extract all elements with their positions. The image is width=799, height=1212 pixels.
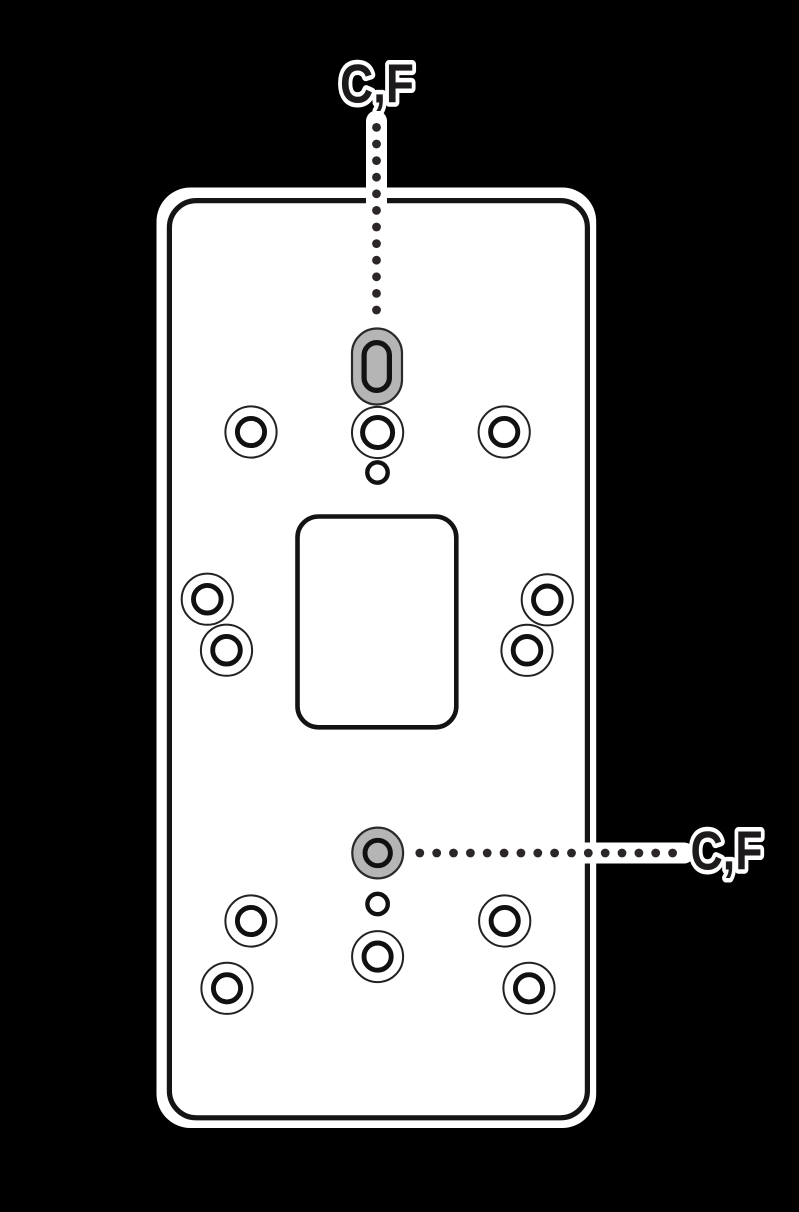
svg-text:C,F: C,F — [691, 821, 763, 882]
svg-text:C,F: C,F — [340, 54, 414, 115]
